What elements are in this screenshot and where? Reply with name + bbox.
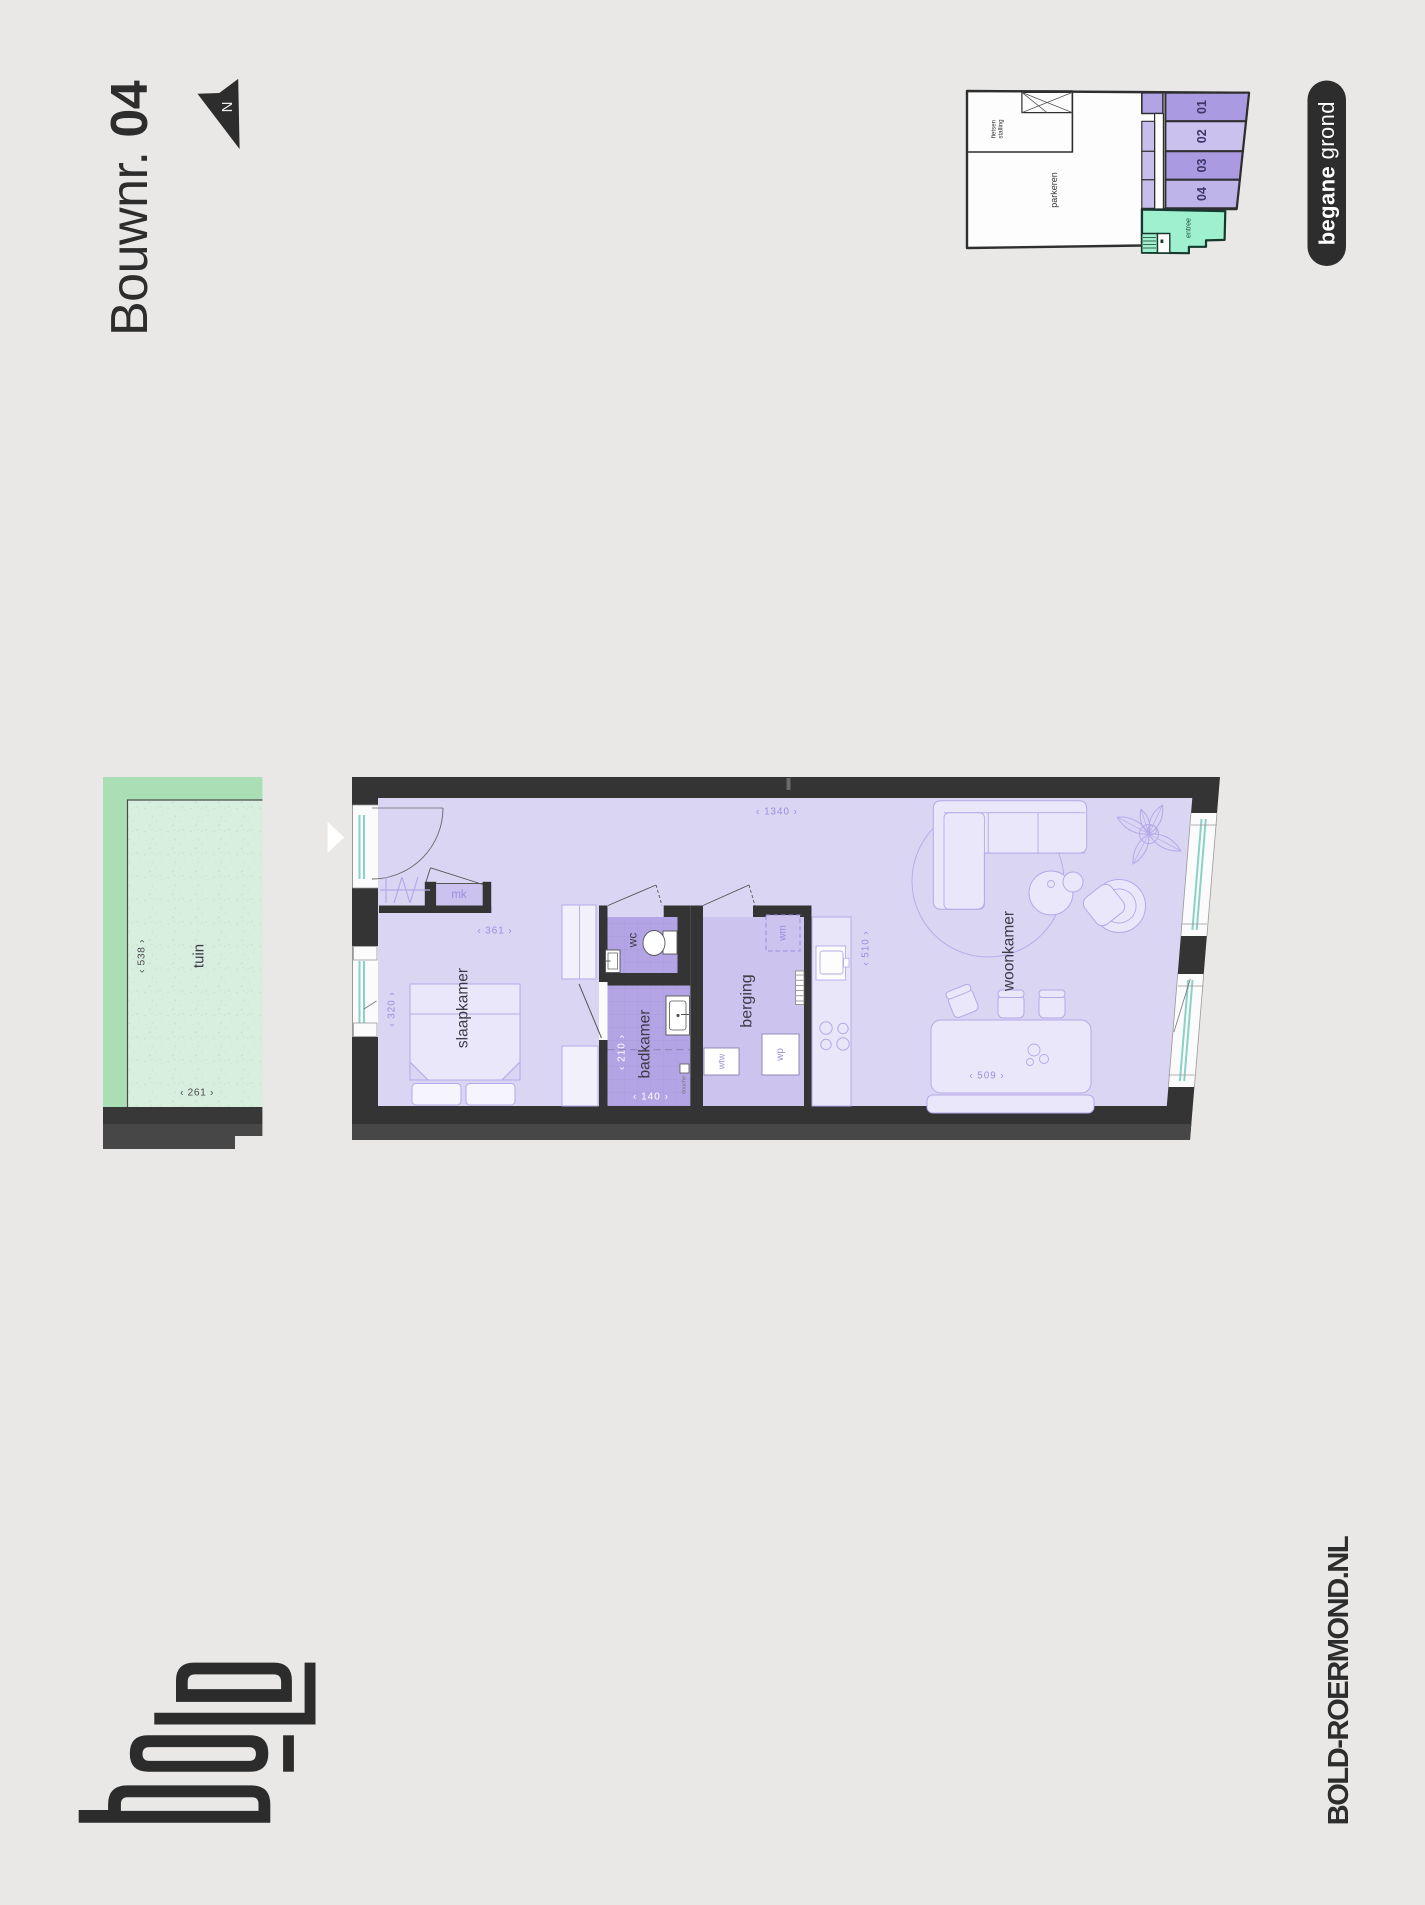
svg-text:‹ 210 ›: ‹ 210 › [617,1034,628,1070]
svg-text:wtw: wtw [717,1053,727,1070]
svg-text:02: 02 [1195,129,1209,143]
svg-text:‹ 509 ›: ‹ 509 › [969,1071,1004,1082]
svg-text:‹ 261 ›: ‹ 261 › [180,1088,214,1099]
svg-text:BOLD-ROERMOND.NL: BOLD-ROERMOND.NL [1323,1536,1355,1825]
svg-text:04: 04 [1195,187,1209,201]
svg-text:Bouwnr. 04: Bouwnr. 04 [101,80,159,336]
svg-text:‹ 140 ›: ‹ 140 › [633,1092,669,1103]
svg-text:entree: entree [1186,218,1193,238]
svg-text:mk: mk [451,889,467,901]
svg-text:slaapkamer: slaapkamer [455,968,472,1048]
svg-text:berging: berging [739,974,756,1027]
svg-text:‹ 320 ›: ‹ 320 › [387,991,398,1026]
svg-text:‹ 361 ›: ‹ 361 › [477,926,512,937]
svg-text:‹ 538 ›: ‹ 538 › [137,939,148,973]
svg-text:begane grond: begane grond [1314,101,1339,245]
svg-text:fietsenstalling: fietsenstalling [991,119,1005,139]
svg-text:‹ 510 ›: ‹ 510 › [861,930,872,965]
svg-text:wm: wm [778,925,789,942]
svg-text:douche: douche [682,1076,688,1094]
svg-text:parkeren: parkeren [1049,172,1059,208]
svg-text:‹ 1340 ›: ‹ 1340 › [756,807,798,818]
svg-text:01: 01 [1195,100,1209,114]
svg-text:wc: wc [626,933,640,949]
svg-text:wp: wp [775,1048,786,1062]
svg-text:tuin: tuin [191,944,208,968]
svg-text:badkamer: badkamer [637,1010,654,1079]
svg-text:03: 03 [1195,159,1209,173]
svg-text:N: N [219,102,236,113]
svg-text:woonkamer: woonkamer [1001,911,1018,992]
